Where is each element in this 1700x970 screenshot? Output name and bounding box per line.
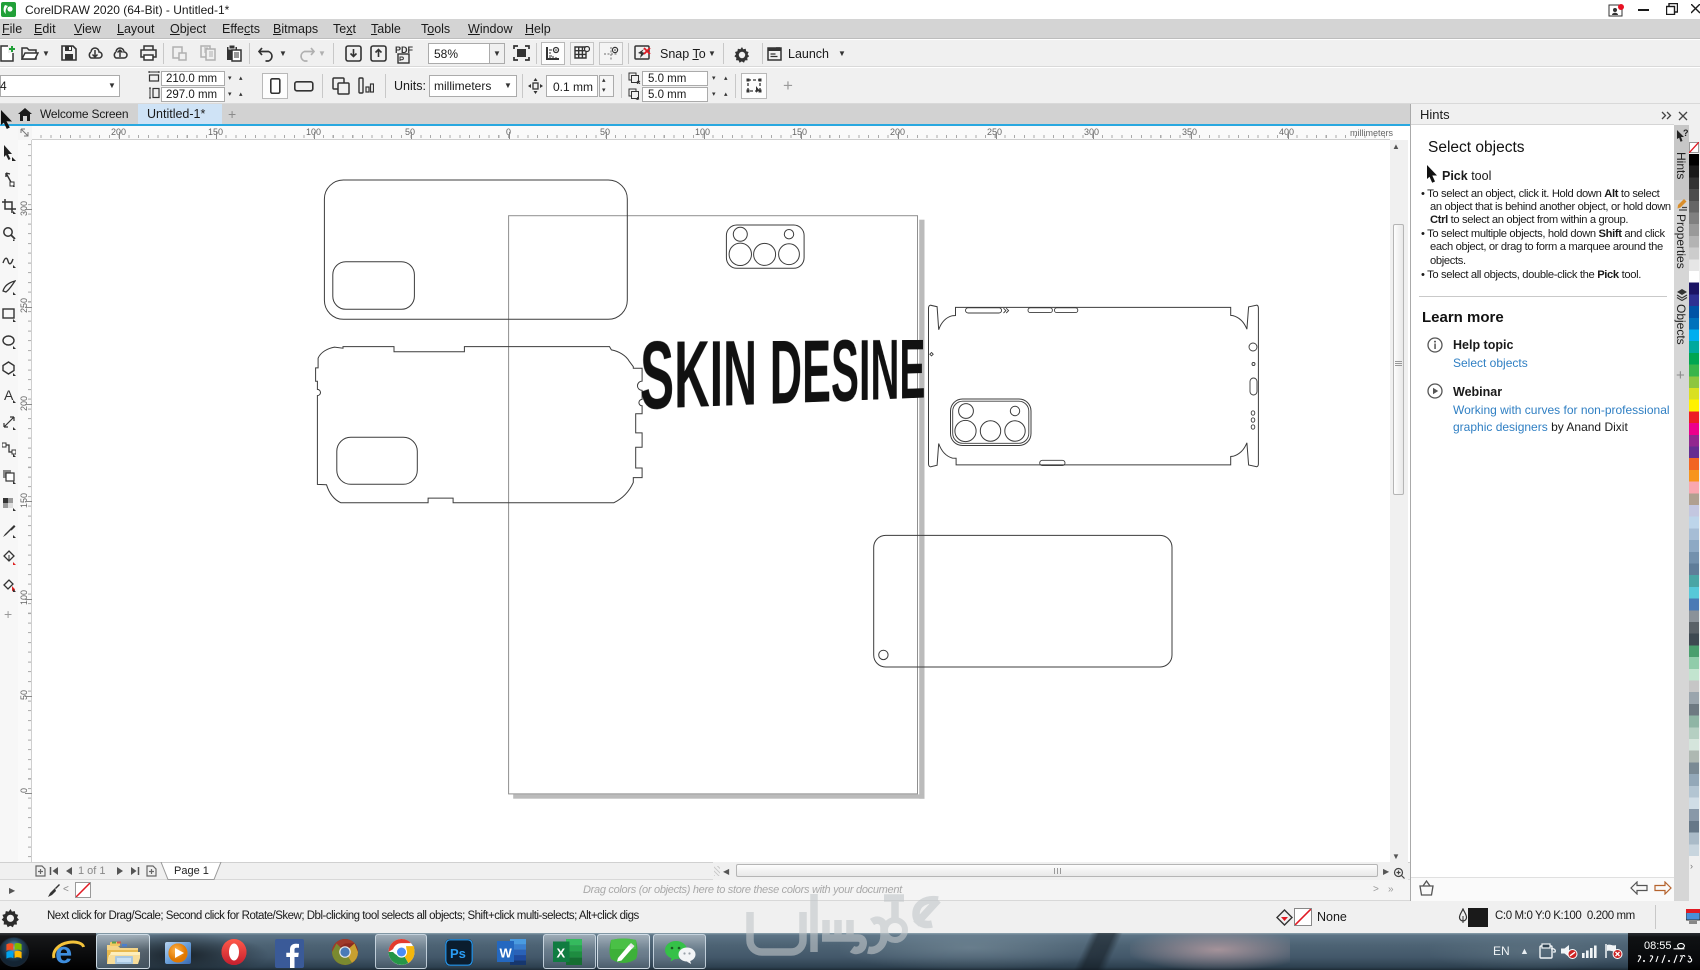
svg-text:A: A	[4, 388, 14, 403]
svg-text:Ps: Ps	[450, 946, 466, 961]
svg-text:W: W	[500, 946, 513, 961]
svg-text:?: ?	[1683, 129, 1688, 138]
svg-text:08:55: 08:55	[1644, 940, 1672, 951]
svg-text:X: X	[557, 946, 566, 961]
